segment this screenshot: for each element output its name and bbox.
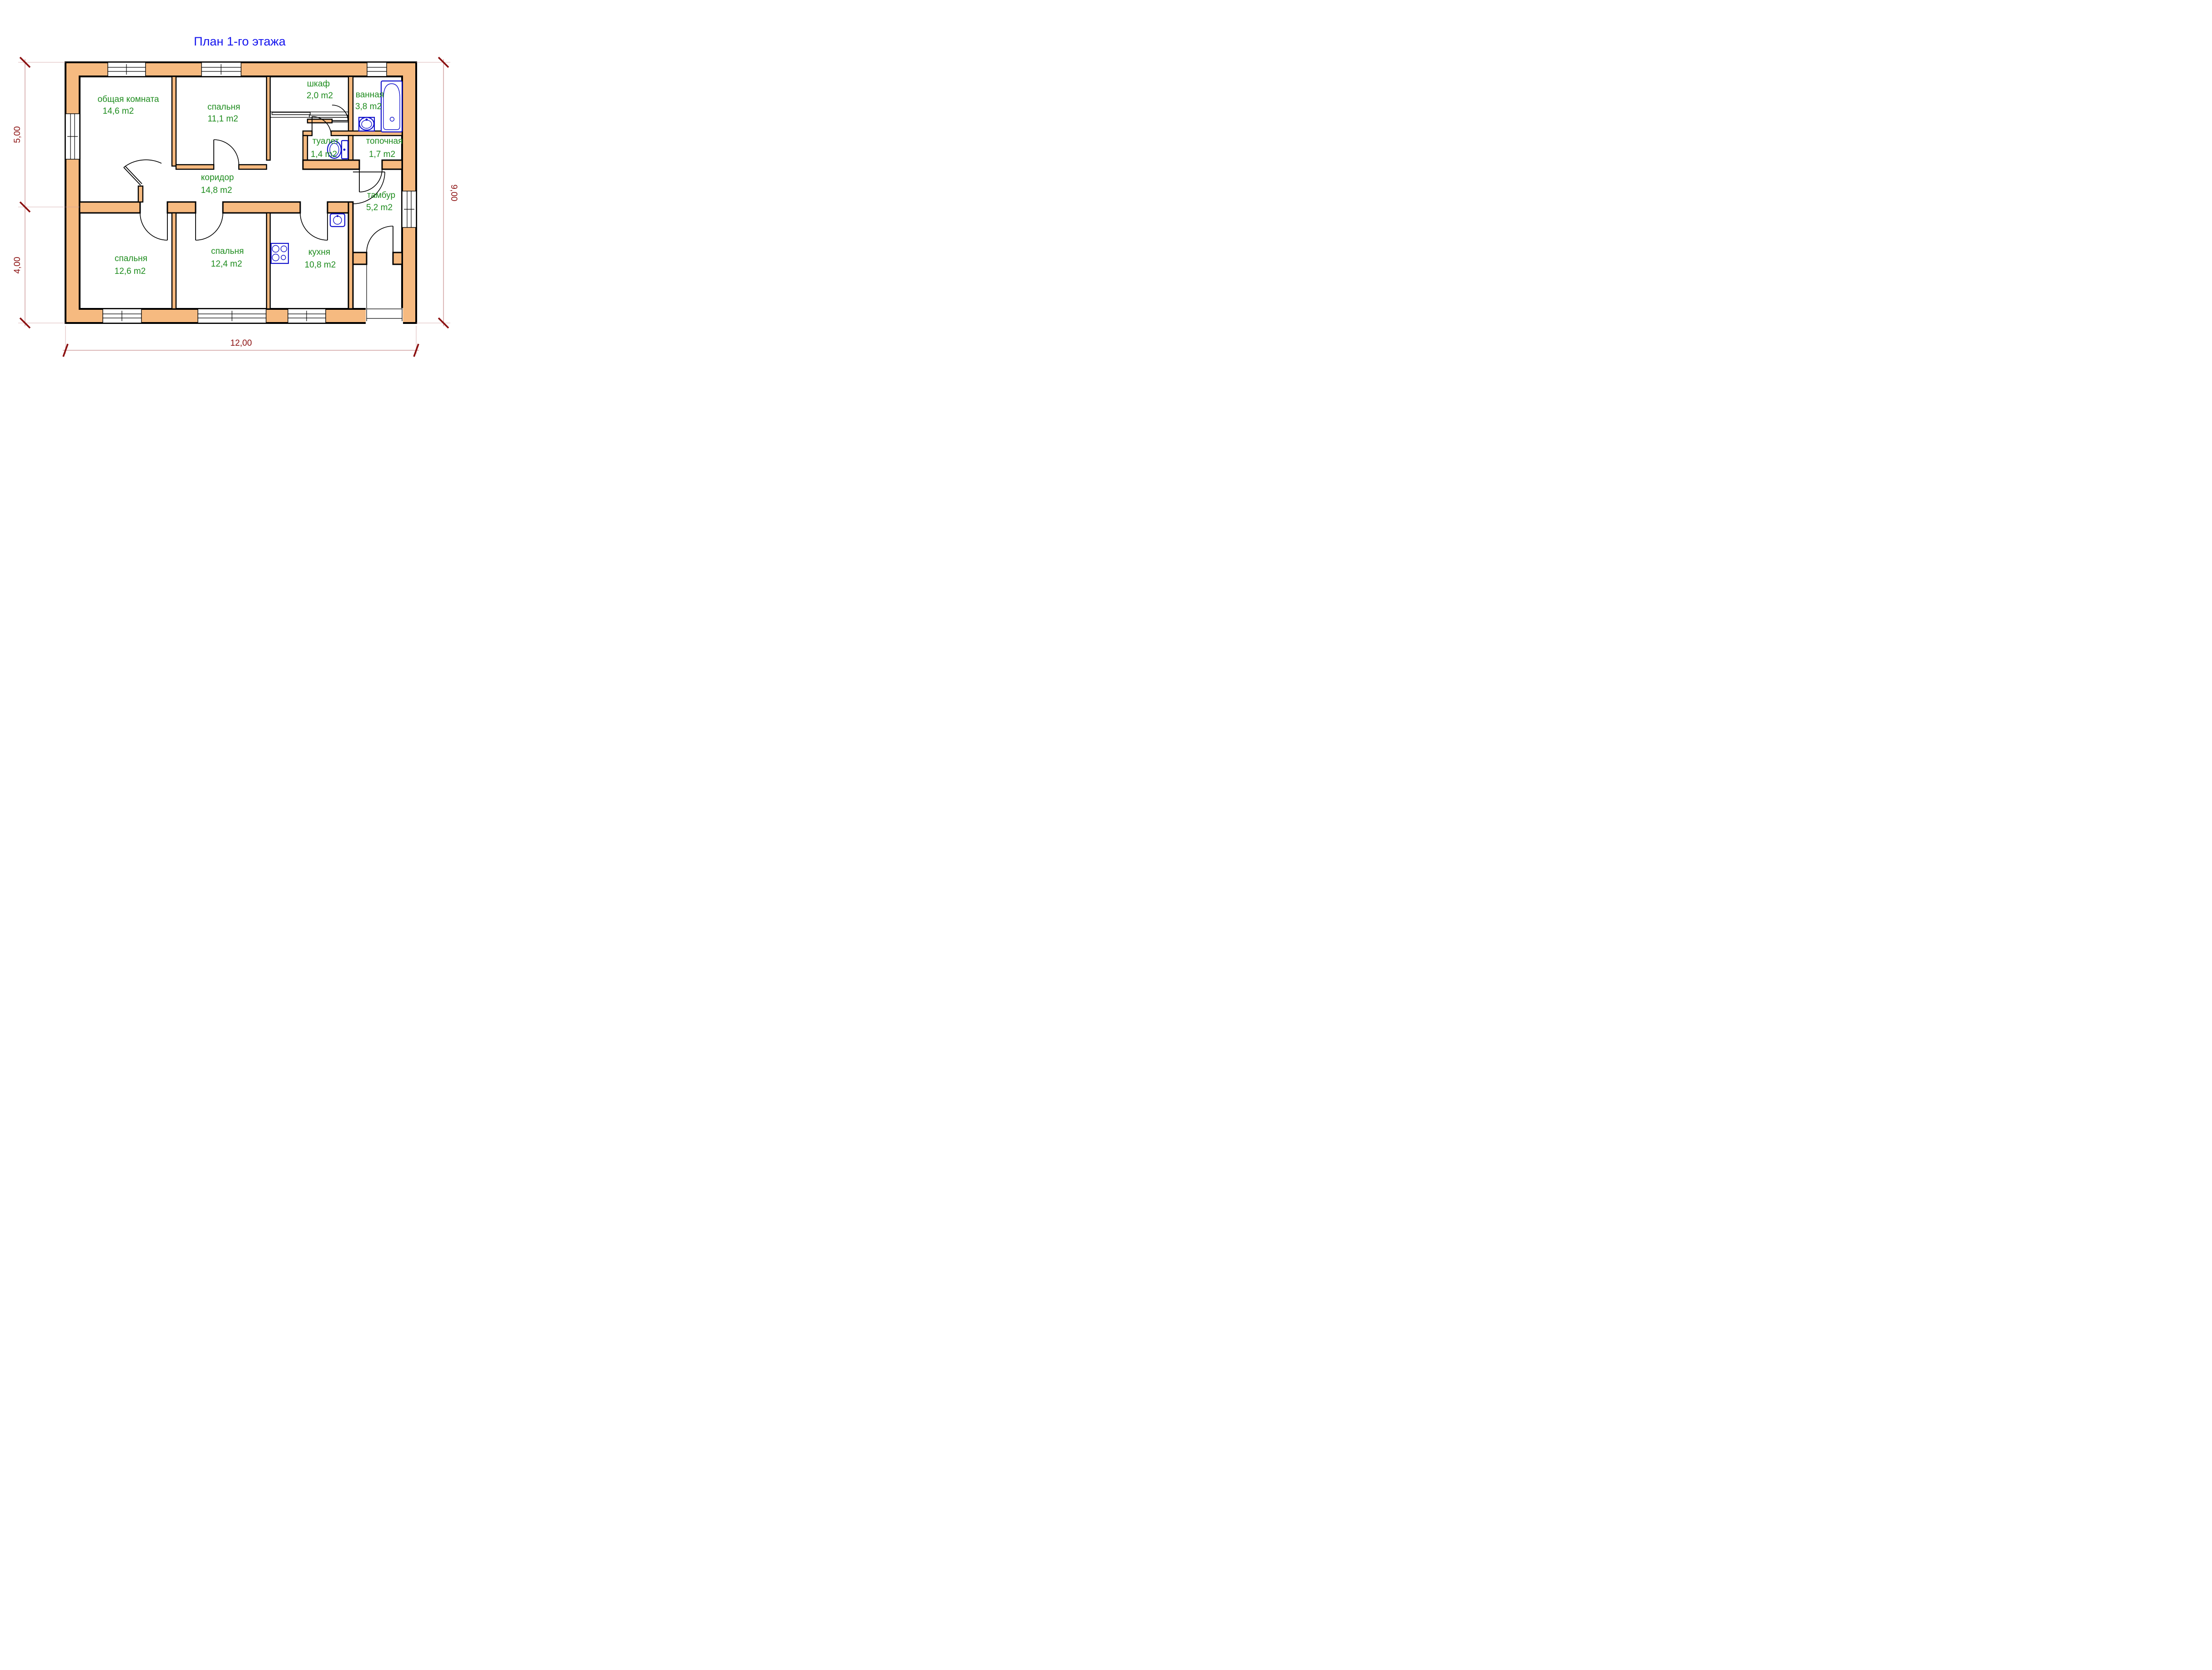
porch [366,264,403,324]
floor-plan-page: План 1-го этажа общая комната 14,6 m2 сп… [0,0,553,418]
wall-corridor-north-b [239,165,267,169]
dimension-left-bottom: 4,00 [13,257,22,274]
wall-closet-bathroom [348,76,353,131]
door-livingroom [124,160,161,185]
room-area-boiler: 1,7 m2 [369,150,395,159]
window-kitchen-bottom [288,309,326,323]
dimension-right: 9,00 [416,57,459,328]
room-area-livingroom: 14,6 m2 [103,106,134,116]
room-label-bedroom2: спальня [115,254,147,263]
window-bedroom2-bottom [103,309,141,323]
window-livingroom-left [66,114,80,159]
door-bedroom3 [196,213,223,240]
door-bedroom1 [214,140,239,165]
bathtub-icon [381,81,402,132]
room-area-corridor: 14,8 m2 [201,186,232,195]
room-label-corridor: коридор [201,173,234,182]
room-area-bathroom: 3,8 m2 [355,102,382,111]
room-label-livingroom: общая комната [97,95,159,104]
room-label-vestibule: тамбур [367,191,395,200]
room-area-bedroom2: 12,6 m2 [115,267,146,276]
door-boiler [359,169,382,192]
window-bedroom1-top [202,62,241,76]
wall-wc-boiler [348,136,353,160]
room-label-wc: туалет [312,136,339,146]
dimension-left-top: 5,00 [13,126,22,143]
wall-bedroom3-kitchen [267,213,270,309]
wall-corridor-south-d [328,202,348,213]
wall-vestibule-south-a [353,252,367,264]
wall-corridor-north-a [176,165,214,169]
door-bedroom2 [140,213,167,240]
wall-bedroom1-closet [267,76,270,160]
room-label-closet: шкаф [307,79,330,89]
wall-corridor-north-c [303,160,359,169]
window-bathroom-top [367,62,387,76]
room-label-boiler: топочная [366,136,403,146]
kitchen-sink-icon [330,214,345,227]
dimension-bottom: 12,00 [63,326,419,357]
room-area-vestibule: 5,2 m2 [366,203,393,212]
window-livingroom-top [108,62,146,76]
door-entrance [367,226,393,252]
room-area-bedroom1: 11,1 m2 [207,114,238,124]
room-label-kitchen: кухня [308,247,330,257]
dimension-bottom: 12,00 [230,338,252,348]
wall-wc-north-a [303,131,312,136]
wall-wc-west [303,136,307,160]
bath-sink-icon [359,117,374,131]
room-label-bedroom3: спальня [211,247,244,256]
closet-sliding-door [270,112,348,117]
wall-livingroom-bedroom1 [172,76,176,166]
wall-corridor-south-b [167,202,196,213]
wall-corridor-south-a [80,202,140,213]
room-label-bathroom: ванная [356,90,384,100]
wall-bath-lobby [307,119,332,123]
stove-icon [271,243,288,263]
room-area-kitchen: 10,8 m2 [305,260,336,270]
page-title: План 1-го этажа [194,35,286,48]
room-area-wc: 1,4 m2 [311,150,337,159]
window-vestibule-right [402,191,416,227]
door-kitchen [300,213,328,240]
wall-corridor-north-d [382,160,402,169]
wall-vestibule-south-b [393,252,402,264]
floor-plan-drawing: План 1-го этажа общая комната 14,6 m2 сп… [0,0,553,418]
room-area-bedroom3: 12,4 m2 [211,259,242,269]
dimension-right: 9,00 [449,185,459,202]
wall-bedroom2-bedroom3 [172,213,176,309]
door-bathroom [332,105,348,122]
room-area-closet: 2,0 m2 [307,91,333,101]
wall-livingroom-door-stub [138,186,143,202]
window-bedroom3-bottom [198,309,266,323]
wall-corridor-south-c [223,202,300,213]
room-labels: общая комната 14,6 m2 спальня 11,1 m2 шк… [97,79,403,276]
room-label-bedroom1: спальня [207,102,240,112]
